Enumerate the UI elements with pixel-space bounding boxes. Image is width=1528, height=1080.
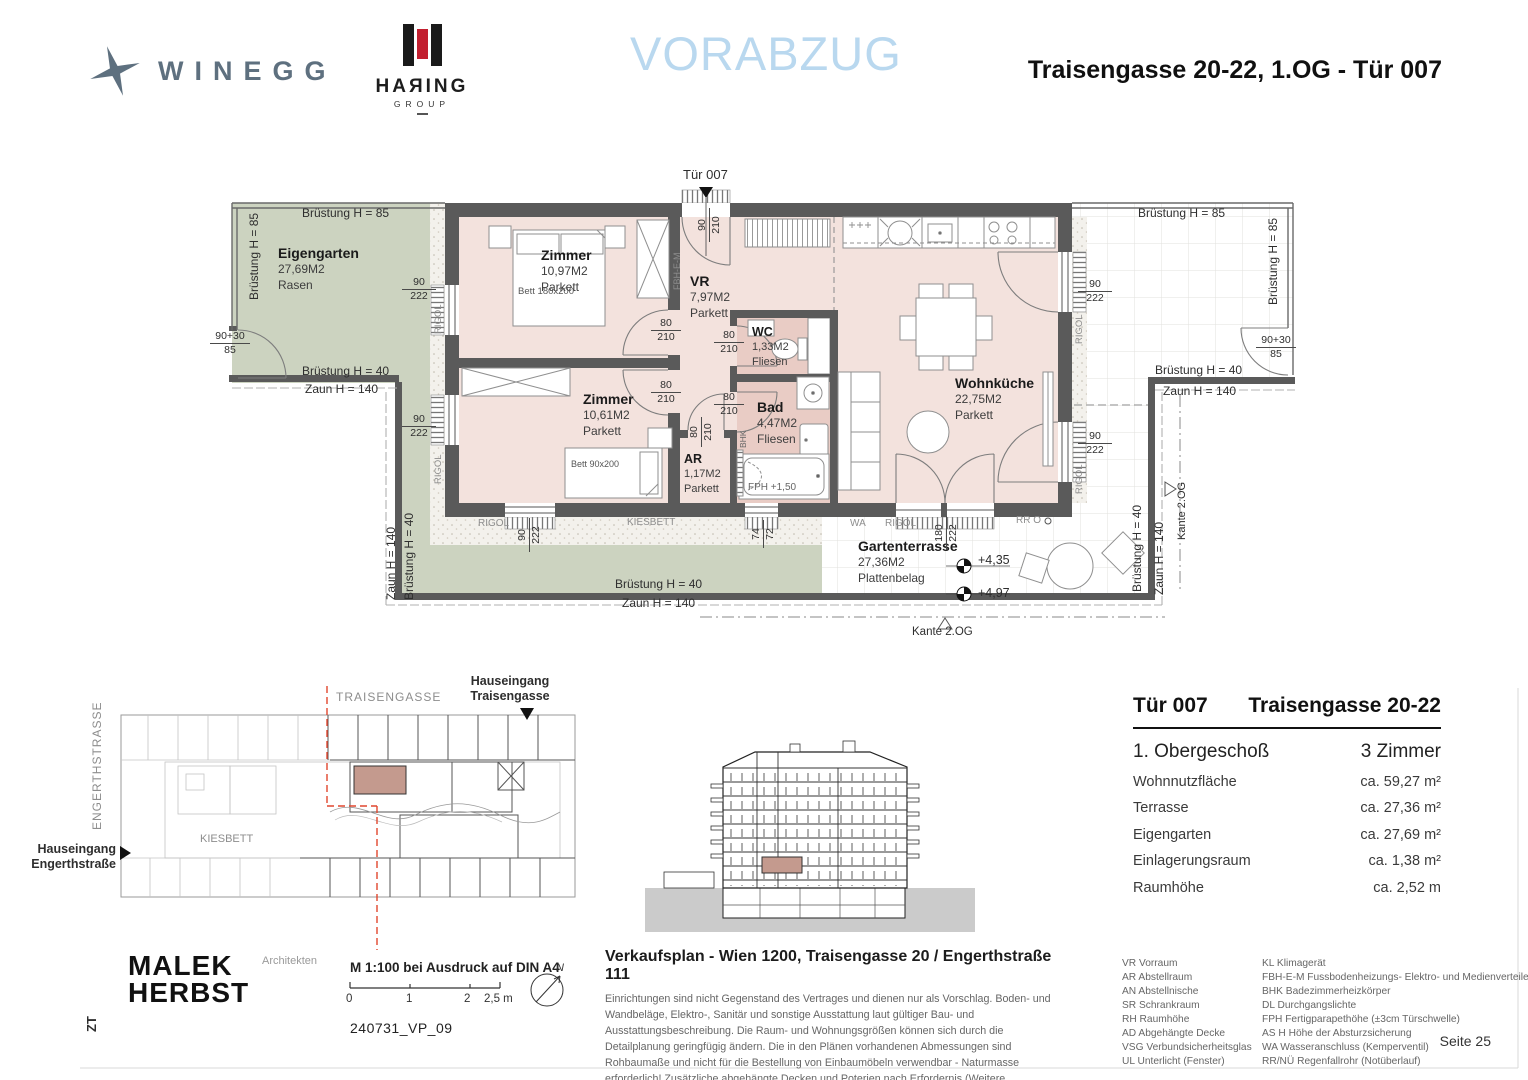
architect-logo: MALEK HERBST [128, 953, 249, 1006]
dim-garden-door: 90+3085 [210, 330, 250, 357]
dim-door-zimmer1: 80210 [651, 317, 681, 344]
dim-window-left-bottom: 90222 [402, 413, 436, 440]
rigol-bottom: RIGOL [478, 518, 509, 530]
label-bruestung40-right-step: Brüstung H = 40 [1155, 363, 1242, 377]
label-zaun140-bottom: Zaun H = 140 [622, 596, 695, 610]
label-zaun140-garden: Zaun H = 140 [305, 382, 378, 396]
rigol-left-top: RIGOL [433, 304, 444, 334]
legend-column-2: KL KlimagerätFBH-E-M Fussbodenheizungs- … [1262, 958, 1528, 1070]
winegg-wordmark: WINEGG [158, 56, 337, 87]
label-bruestung40-left-strip: Brüstung H = 40 [402, 513, 416, 600]
label-zaun140-left-strip: Zaun H = 140 [384, 527, 398, 600]
haring-logo: HAЯING GROUP [372, 24, 472, 115]
rigol-terrace: RIGOL [885, 518, 916, 530]
kiesbett-site-label: KIESBETT [200, 833, 253, 846]
rr-label: RR O [1016, 515, 1041, 527]
dim-entry-door: 90210 [696, 208, 723, 242]
winegg-star-icon [88, 44, 142, 98]
info-row: Eigengartenca. 27,69 m² [1133, 827, 1441, 843]
entrance-traisengasse: Hauseingang Traisengasse [455, 674, 565, 704]
level-497: +4,97 [978, 586, 1010, 601]
north-compass-icon [531, 974, 563, 1006]
label-bruestung85-left: Brüstung H = 85 [247, 213, 261, 300]
rigol-right-top: RIGOL [1074, 314, 1085, 344]
room-eigengarten: Eigengarten 27,69M2 Rasen [278, 244, 359, 293]
legend-column-1: VR VorraumAR Abstellraum AN Abstellnisch… [1122, 958, 1252, 1070]
label-bruestung85-top-left: Brüstung H = 85 [302, 206, 389, 220]
dim-window-right-top: 90222 [1078, 278, 1112, 305]
vorabzug-watermark: VORABZUG [630, 26, 902, 81]
rigol-right-bottom: RIGOL [1074, 464, 1085, 494]
info-row: Raumhöheca. 2,52 m [1133, 880, 1441, 896]
info-row: Wohnnutzflächeca. 59,27 m² [1133, 774, 1441, 790]
scale-tick-1: 1 [406, 993, 412, 1005]
haring-wordmark: HAЯING [372, 76, 472, 98]
label-bruestung40-bottom: Brüstung H = 40 [615, 577, 702, 591]
entry-door-label: Tür 007 [683, 167, 728, 183]
dim-door-zimmer2: 80210 [651, 379, 681, 406]
room-vr: VR 7,97M2 Parkett [690, 272, 730, 321]
bhk-label: BHK [738, 431, 748, 448]
dim-bad-window: 7472 [750, 520, 777, 548]
info-address: Traisengasse 20-22 [1248, 694, 1441, 718]
fph-label: FPH +1,50 [748, 482, 796, 494]
haring-group-label: GROUP [372, 99, 472, 109]
zt-label: ZT [84, 1016, 100, 1032]
bed2-label: Bett 90x200 [571, 459, 619, 470]
scale-title: M 1:100 bei Ausdruck auf DIN A4 [350, 960, 560, 975]
label-zaun140-right-step: Zaun H = 140 [1163, 384, 1236, 398]
unit-info-panel: Tür 007 Traisengasse 20-22 1. Obergescho… [1133, 694, 1441, 896]
verkaufsplan-page: WINEGG HAЯING GROUP VORABZUG Traisengass… [0, 0, 1528, 1080]
room-zimmer2: Zimmer 10,61M2 Parkett [583, 390, 634, 439]
winegg-logo: WINEGG [88, 44, 337, 98]
label-bruestung85-right: Brüstung H = 85 [1266, 218, 1280, 305]
entrance-engerthstrasse: Hauseingang Engerthstraße [6, 842, 116, 872]
label-kante-right: Kante 2.OG [1176, 482, 1189, 540]
room-wohnkueche: Wohnküche 22,75M2 Parkett [955, 374, 1034, 423]
dim-window-right-bottom: 90222 [1078, 430, 1112, 457]
dim-terrace-corner-door: 90+3085 [1256, 334, 1296, 361]
label-bruestung40-terrace: Brüstung H = 40 [1130, 505, 1144, 592]
dim-window-left-top: 90222 [402, 276, 436, 303]
legal-body: Einrichtungen sind nicht Gegenstand des … [605, 991, 1071, 1080]
legal-block: Verkaufsplan - Wien 1200, Traisengasse 2… [605, 948, 1071, 1080]
label-kante-bottom: Kante 2.OG [912, 626, 973, 640]
fbh-label: FBH-E-M [672, 253, 683, 291]
haring-bars-icon [400, 24, 444, 68]
scale-tick-25: 2,5 m [484, 993, 513, 1005]
building-section [645, 741, 975, 932]
info-row: Terrasseca. 27,36 m² [1133, 800, 1441, 816]
dim-door-wc: 80210 [714, 329, 744, 356]
rigol-strip-left [430, 203, 445, 545]
dim-terrace-door: 180222 [933, 516, 960, 550]
dim-door-ar: 80210 [688, 417, 715, 447]
info-row: Einlagerungsraumca. 1,38 m² [1133, 853, 1441, 869]
room-ar: AR 1,17M2 Parkett [684, 451, 721, 496]
scale-tick-0: 0 [346, 993, 352, 1005]
scale-tick-2: 2 [464, 993, 470, 1005]
street-traisengasse: TRAISENGASSE [336, 690, 441, 704]
north-label: N [556, 962, 564, 974]
street-engerthstrasse: ENGERTHSTRASSE [90, 702, 104, 830]
room-wc: WC 1,33M2 Fliesen [752, 324, 789, 369]
level-435: +4,35 [978, 553, 1010, 568]
bed1-label: Bett 180x200 [518, 286, 574, 297]
dim-window-bottom: 90222 [516, 518, 543, 552]
page-number: Seite 25 [1440, 1033, 1491, 1049]
kiesbett-label: KIESBETT [627, 517, 675, 529]
plan-code: 240731_VP_09 [350, 1020, 453, 1036]
wa-label: WA [850, 518, 866, 530]
legal-title: Verkaufsplan - Wien 1200, Traisengasse 2… [605, 948, 1071, 984]
label-bruestung85-top-right: Brüstung H = 85 [1138, 206, 1225, 220]
label-zaun140-terrace: Zaun H = 140 [1152, 522, 1166, 595]
info-door: Tür 007 [1133, 694, 1208, 718]
info-floor: 1. Obergeschoß [1133, 741, 1269, 763]
info-rooms: 3 Zimmer [1361, 741, 1441, 763]
architekten-label: Architekten [262, 955, 317, 967]
dim-door-bad: 80210 [714, 391, 744, 418]
page-title: Traisengasse 20-22, 1.OG - Tür 007 [1028, 56, 1442, 85]
room-bad: Bad 4,47M2 Fliesen [757, 398, 797, 447]
site-plan [120, 686, 575, 950]
haring-dash [417, 113, 428, 115]
rigol-left-bottom: RIGOL [433, 454, 444, 484]
label-bruestung40-garden: Brüstung H = 40 [302, 364, 389, 378]
scale-bar [350, 982, 500, 988]
